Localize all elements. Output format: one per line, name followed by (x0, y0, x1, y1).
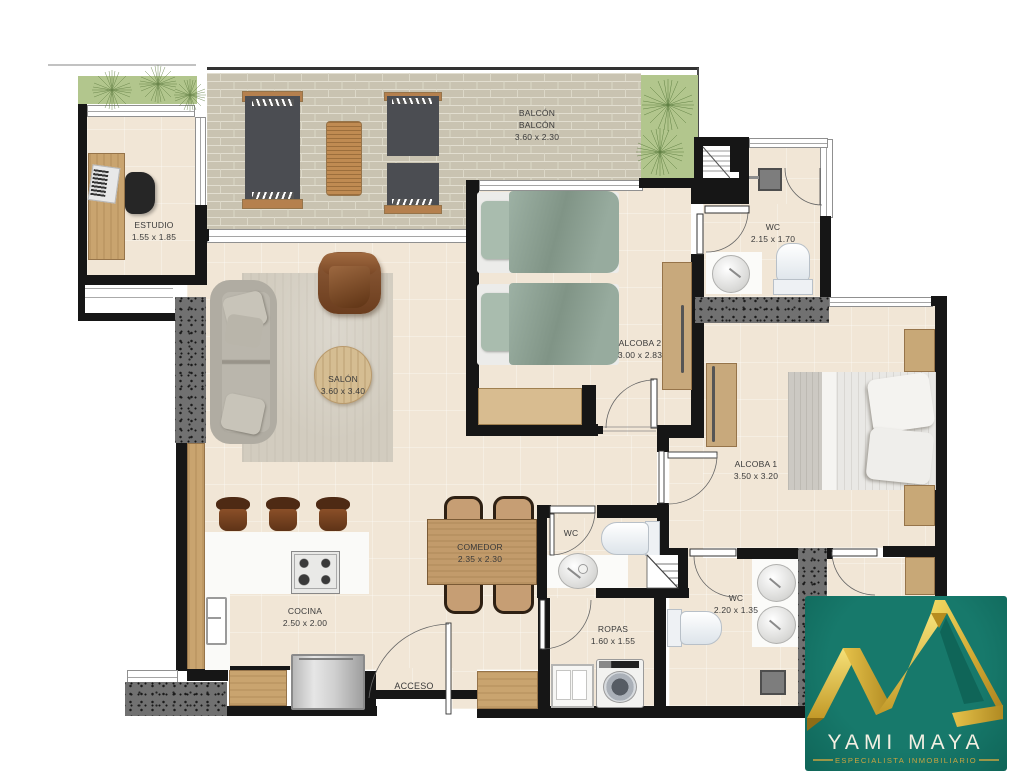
svg-text:YAMI MAYA: YAMI MAYA (827, 731, 984, 754)
svg-text:ESPECIALISTA INMOBILIARIO: ESPECIALISTA INMOBILIARIO (835, 756, 977, 765)
